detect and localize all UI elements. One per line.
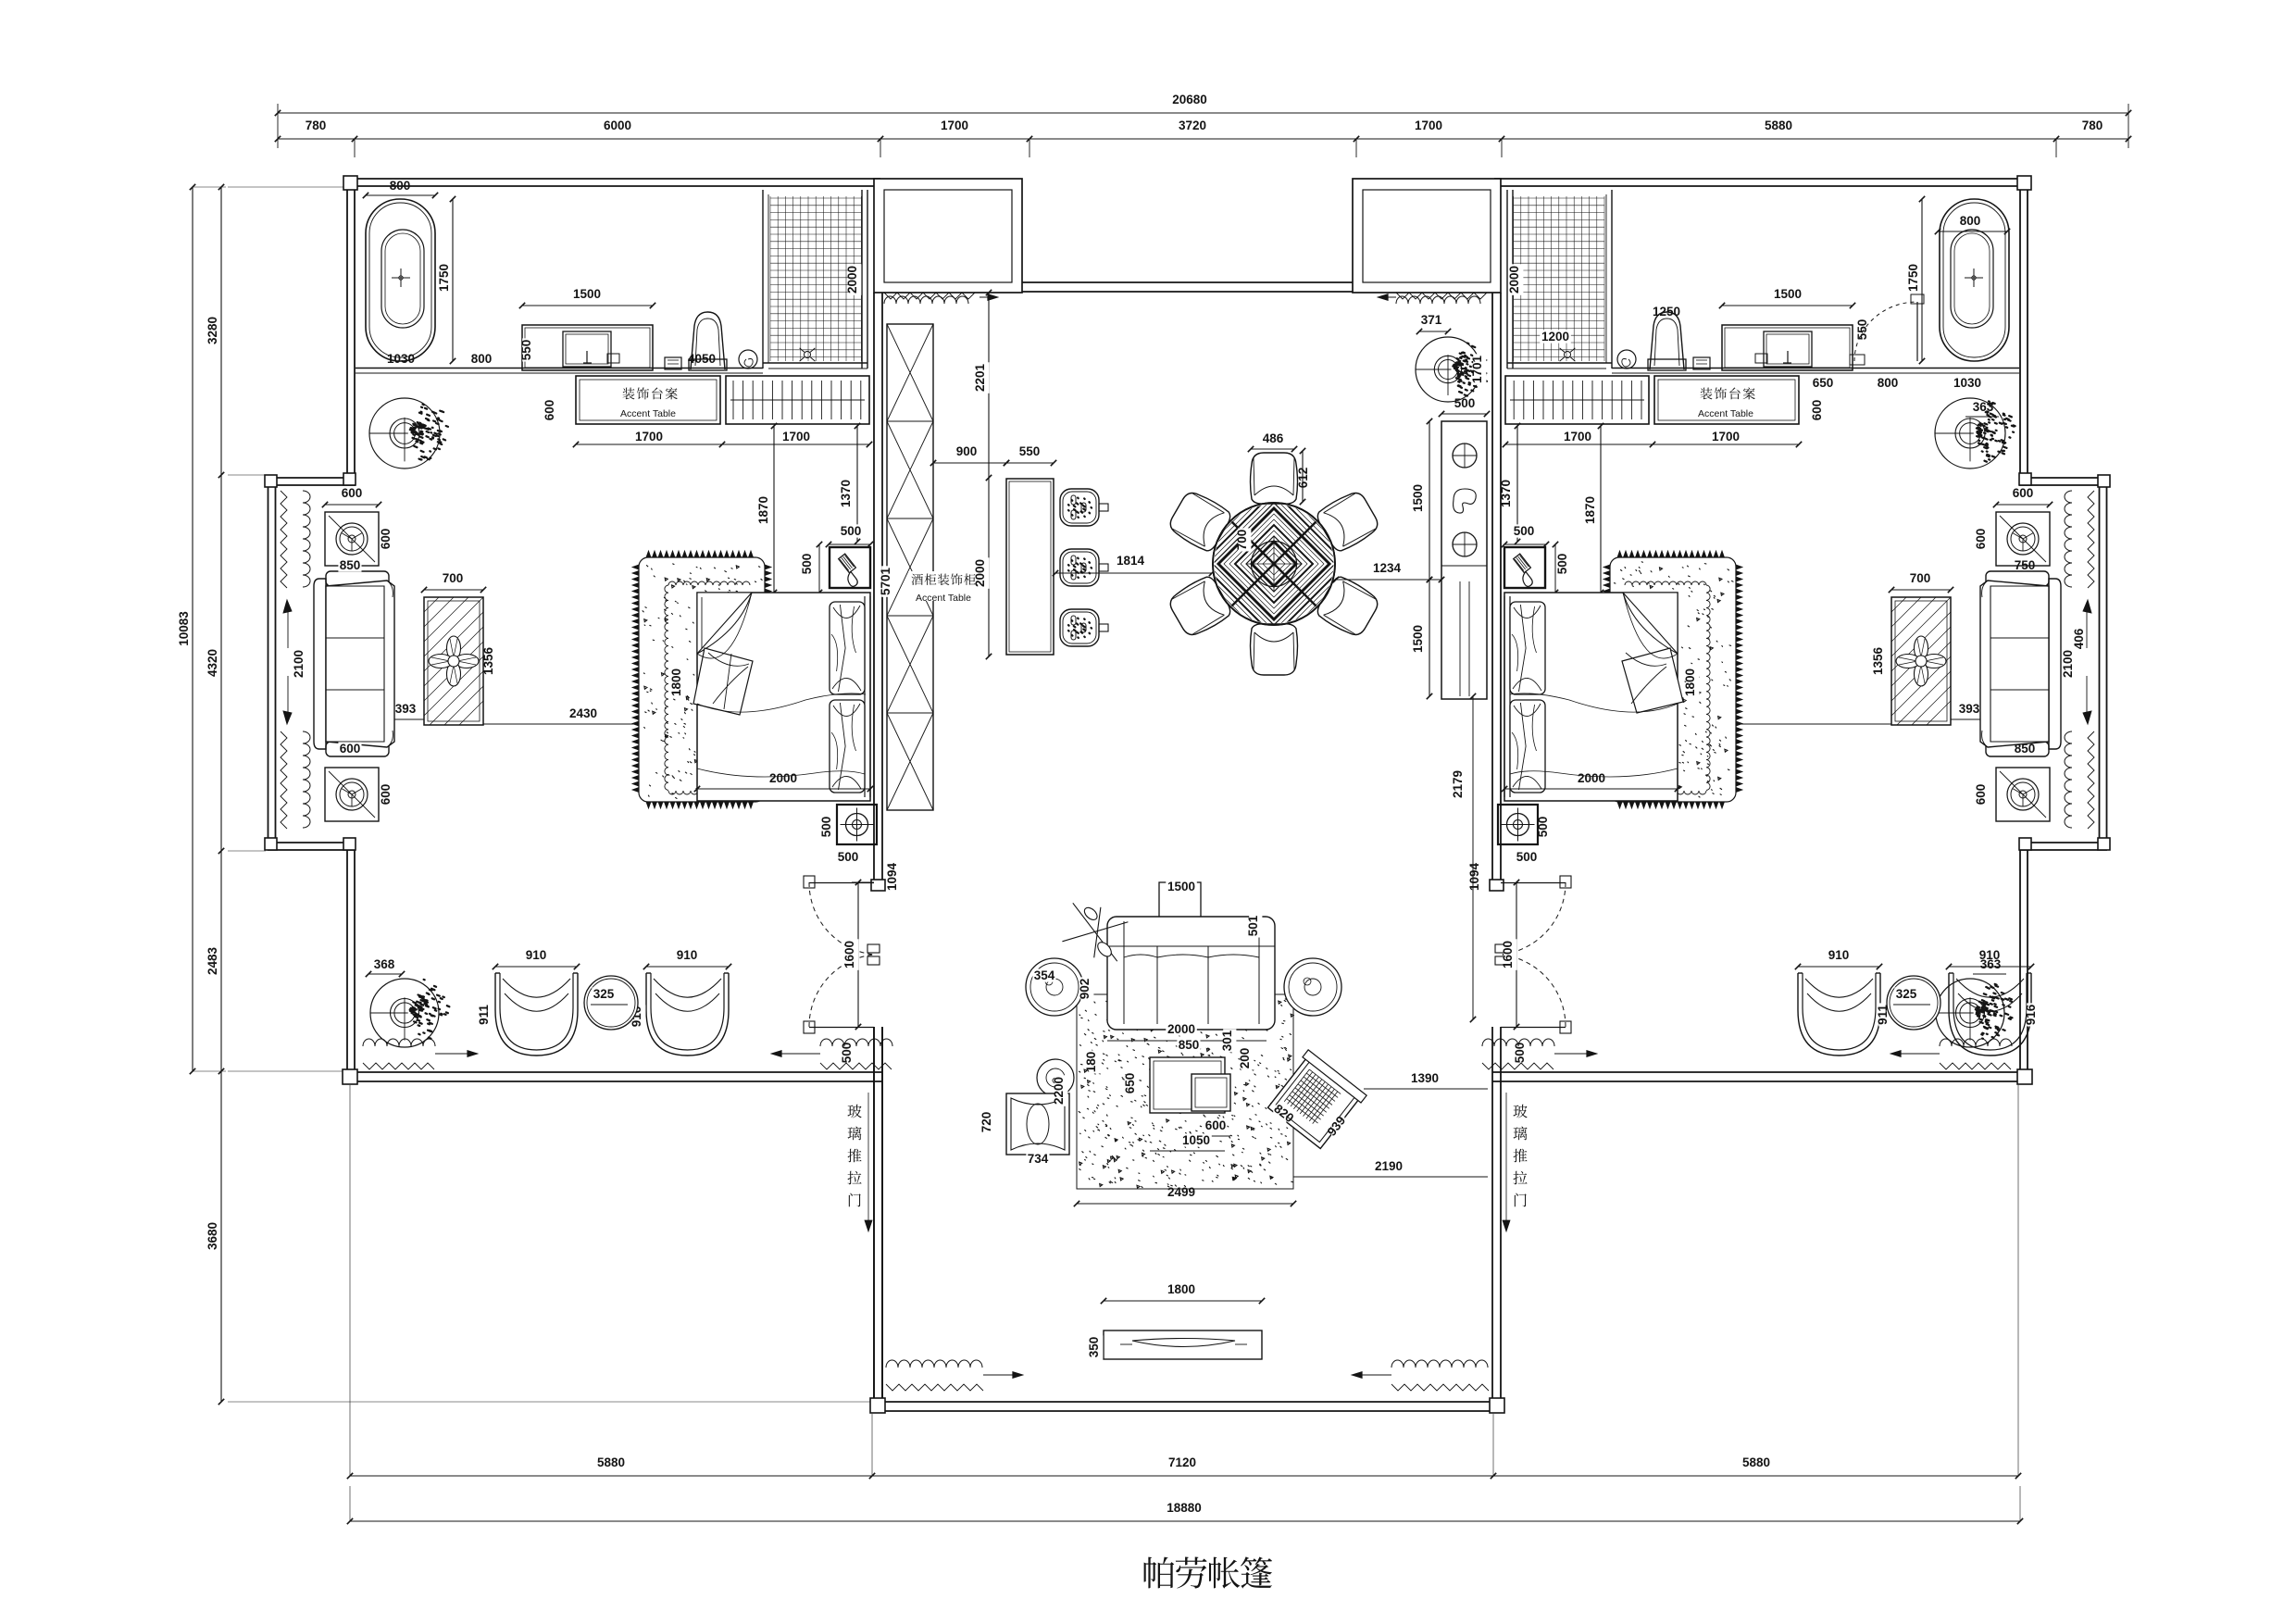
svg-text:734: 734 bbox=[1028, 1152, 1049, 1166]
svg-text:18880: 18880 bbox=[1167, 1501, 1202, 1515]
svg-text:800: 800 bbox=[1960, 214, 1981, 228]
svg-text:2201: 2201 bbox=[973, 363, 987, 392]
svg-text:800: 800 bbox=[471, 352, 493, 366]
svg-text:1370: 1370 bbox=[1499, 480, 1513, 507]
svg-text:371: 371 bbox=[1421, 313, 1442, 327]
svg-text:3680: 3680 bbox=[206, 1222, 219, 1250]
svg-text:4320: 4320 bbox=[206, 649, 219, 677]
svg-text:800: 800 bbox=[390, 179, 411, 193]
svg-text:1800: 1800 bbox=[669, 668, 683, 696]
svg-text:1500: 1500 bbox=[1774, 287, 1802, 301]
svg-text:910: 910 bbox=[1828, 948, 1850, 962]
svg-text:500: 500 bbox=[819, 817, 833, 838]
svg-text:550: 550 bbox=[519, 340, 533, 361]
svg-text:780: 780 bbox=[2082, 119, 2103, 132]
svg-text:393: 393 bbox=[395, 702, 417, 716]
svg-text:2190: 2190 bbox=[1375, 1159, 1403, 1173]
svg-text:1600: 1600 bbox=[1501, 941, 1515, 968]
svg-text:393: 393 bbox=[1959, 702, 1980, 716]
svg-text:1700: 1700 bbox=[635, 430, 663, 443]
svg-text:7120: 7120 bbox=[1168, 1455, 1196, 1469]
svg-text:600: 600 bbox=[543, 400, 556, 421]
svg-text:1700: 1700 bbox=[782, 430, 810, 443]
svg-text:550: 550 bbox=[1855, 319, 1869, 341]
svg-text:600: 600 bbox=[342, 486, 363, 500]
svg-text:1050: 1050 bbox=[1182, 1133, 1210, 1147]
svg-text:200: 200 bbox=[1238, 1048, 1252, 1069]
svg-text:500: 500 bbox=[1555, 554, 1569, 575]
svg-text:325: 325 bbox=[593, 987, 615, 1001]
svg-text:2000: 2000 bbox=[1167, 1022, 1195, 1036]
svg-text:5880: 5880 bbox=[1765, 119, 1792, 132]
svg-text:1094: 1094 bbox=[1467, 862, 1481, 891]
svg-text:406: 406 bbox=[2072, 628, 2086, 649]
svg-text:500: 500 bbox=[800, 554, 814, 575]
svg-text:2100: 2100 bbox=[2061, 650, 2075, 678]
svg-text:2000: 2000 bbox=[1507, 266, 1521, 294]
svg-text:6000: 6000 bbox=[604, 119, 631, 132]
svg-text:1700: 1700 bbox=[1712, 430, 1740, 443]
svg-text:20680: 20680 bbox=[1172, 93, 1207, 106]
svg-text:1750: 1750 bbox=[1906, 264, 1920, 292]
svg-text:3720: 3720 bbox=[1179, 119, 1206, 132]
svg-text:1870: 1870 bbox=[756, 496, 770, 524]
svg-text:600: 600 bbox=[379, 784, 393, 806]
svg-text:354: 354 bbox=[1034, 968, 1055, 982]
svg-text:1700: 1700 bbox=[1564, 430, 1591, 443]
svg-text:1200: 1200 bbox=[1541, 330, 1569, 344]
svg-text:1701: 1701 bbox=[1470, 355, 1484, 383]
svg-text:486: 486 bbox=[1263, 431, 1284, 445]
svg-text:1700: 1700 bbox=[941, 119, 968, 132]
svg-text:600: 600 bbox=[1974, 784, 1988, 806]
svg-text:500: 500 bbox=[840, 1043, 854, 1064]
svg-text:720: 720 bbox=[980, 1112, 993, 1133]
svg-text:1356: 1356 bbox=[1871, 646, 1885, 675]
svg-text:500: 500 bbox=[1513, 1043, 1527, 1064]
svg-text:1600: 1600 bbox=[842, 941, 856, 968]
svg-text:1500: 1500 bbox=[573, 287, 601, 301]
svg-text:5701: 5701 bbox=[879, 567, 892, 595]
svg-text:1370: 1370 bbox=[839, 480, 853, 507]
svg-text:780: 780 bbox=[306, 119, 327, 132]
svg-text:1750: 1750 bbox=[437, 264, 451, 292]
svg-text:3280: 3280 bbox=[206, 317, 219, 344]
svg-text:612: 612 bbox=[1296, 468, 1310, 489]
svg-text:850: 850 bbox=[340, 558, 361, 572]
svg-text:2000: 2000 bbox=[973, 559, 987, 587]
svg-text:600: 600 bbox=[1205, 1118, 1227, 1132]
svg-text:2000: 2000 bbox=[769, 771, 797, 785]
svg-text:650: 650 bbox=[1813, 376, 1834, 390]
svg-text:600: 600 bbox=[2013, 486, 2034, 500]
svg-text:363: 363 bbox=[1973, 400, 1994, 414]
svg-text:700: 700 bbox=[443, 571, 464, 585]
svg-text:550: 550 bbox=[1019, 444, 1041, 458]
svg-text:350: 350 bbox=[1087, 1337, 1101, 1358]
svg-text:1700: 1700 bbox=[1415, 119, 1442, 132]
svg-text:1500: 1500 bbox=[1167, 880, 1195, 893]
svg-text:5880: 5880 bbox=[1742, 1455, 1770, 1469]
svg-text:1500: 1500 bbox=[1411, 625, 1425, 653]
svg-text:1250: 1250 bbox=[1653, 305, 1680, 319]
svg-text:301: 301 bbox=[1220, 1030, 1234, 1051]
svg-text:368: 368 bbox=[374, 957, 395, 971]
svg-text:500: 500 bbox=[841, 524, 862, 538]
svg-text:2000: 2000 bbox=[845, 266, 859, 294]
svg-text:700: 700 bbox=[1235, 530, 1249, 551]
svg-text:1814: 1814 bbox=[1117, 554, 1145, 568]
svg-text:600: 600 bbox=[1810, 400, 1824, 421]
svg-text:500: 500 bbox=[1454, 396, 1476, 410]
svg-text:910: 910 bbox=[526, 948, 547, 962]
svg-text:916: 916 bbox=[2024, 1004, 2038, 1025]
svg-text:500: 500 bbox=[1516, 850, 1538, 864]
svg-text:910: 910 bbox=[1979, 948, 2001, 962]
svg-text:1800: 1800 bbox=[1683, 668, 1697, 696]
svg-text:700: 700 bbox=[1910, 571, 1931, 585]
svg-text:Accent Table: Accent Table bbox=[620, 408, 676, 419]
svg-text:2483: 2483 bbox=[206, 946, 219, 975]
svg-text:500: 500 bbox=[1536, 817, 1550, 838]
svg-text:180: 180 bbox=[1084, 1052, 1098, 1073]
svg-text:10083: 10083 bbox=[177, 611, 191, 646]
svg-text:1094: 1094 bbox=[885, 862, 899, 891]
svg-text:501: 501 bbox=[1246, 915, 1260, 936]
svg-text:500: 500 bbox=[838, 850, 859, 864]
svg-text:1234: 1234 bbox=[1373, 561, 1402, 575]
svg-text:600: 600 bbox=[340, 742, 361, 756]
svg-text:1030: 1030 bbox=[387, 352, 415, 366]
svg-text:910: 910 bbox=[677, 948, 698, 962]
svg-text:1030: 1030 bbox=[1953, 376, 1981, 390]
svg-text:1800: 1800 bbox=[1167, 1282, 1195, 1296]
svg-text:2100: 2100 bbox=[292, 650, 306, 678]
svg-text:1356: 1356 bbox=[481, 646, 495, 675]
svg-text:2200: 2200 bbox=[1052, 1077, 1066, 1105]
svg-text:650: 650 bbox=[1123, 1073, 1137, 1094]
svg-text:4050: 4050 bbox=[688, 352, 716, 366]
svg-text:2499: 2499 bbox=[1167, 1185, 1195, 1199]
svg-text:5880: 5880 bbox=[597, 1455, 625, 1469]
svg-text:2430: 2430 bbox=[569, 706, 597, 720]
svg-text:Accent Table: Accent Table bbox=[916, 593, 971, 604]
svg-text:902: 902 bbox=[1078, 979, 1092, 1000]
svg-text:900: 900 bbox=[956, 444, 978, 458]
svg-text:850: 850 bbox=[1179, 1038, 1200, 1052]
svg-text:Accent Table: Accent Table bbox=[1698, 408, 1753, 419]
svg-text:800: 800 bbox=[1878, 376, 1899, 390]
svg-text:1870: 1870 bbox=[1583, 496, 1597, 524]
svg-text:600: 600 bbox=[379, 529, 393, 550]
svg-text:325: 325 bbox=[1896, 987, 1917, 1001]
svg-text:1390: 1390 bbox=[1411, 1071, 1439, 1085]
svg-text:1500: 1500 bbox=[1411, 484, 1425, 512]
svg-text:500: 500 bbox=[1514, 524, 1535, 538]
svg-text:911: 911 bbox=[477, 1005, 491, 1025]
svg-text:2179: 2179 bbox=[1451, 770, 1465, 798]
svg-text:600: 600 bbox=[1974, 529, 1988, 550]
svg-text:2000: 2000 bbox=[1578, 771, 1605, 785]
